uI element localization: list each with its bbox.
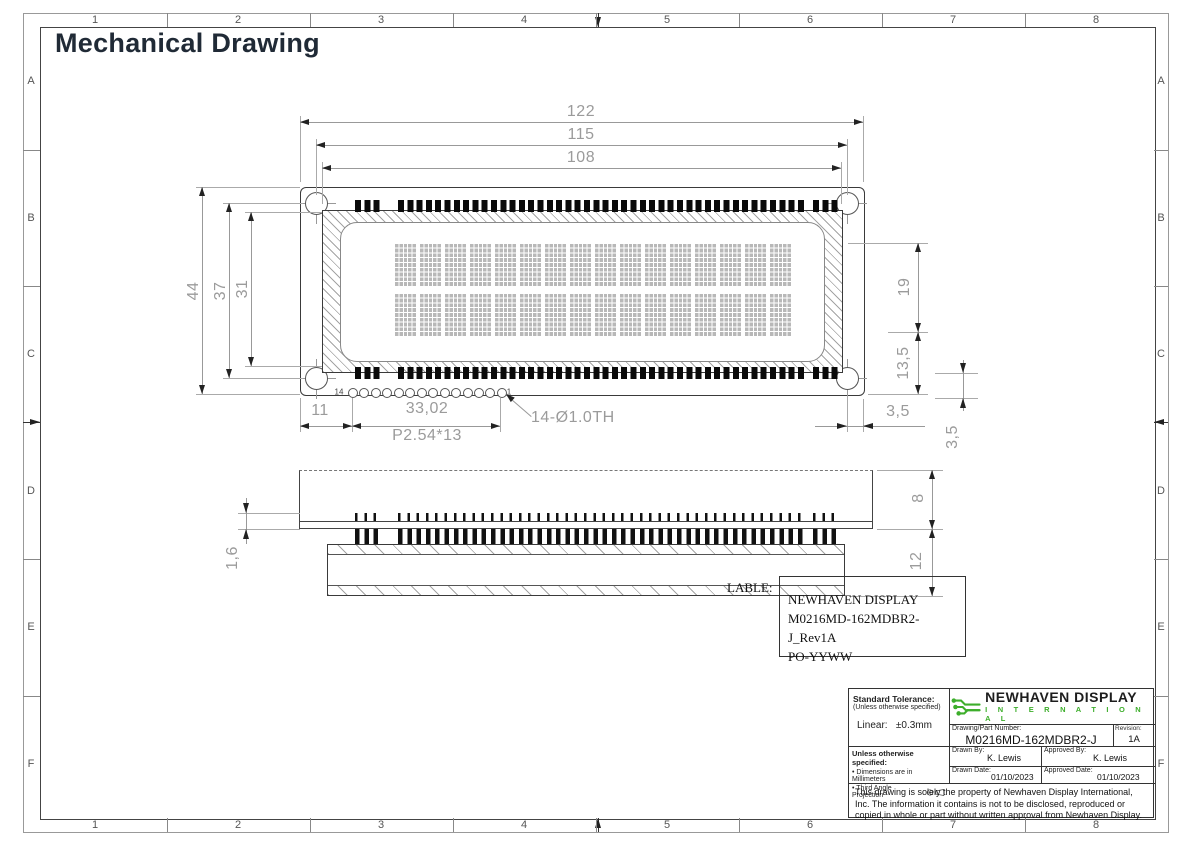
- character-cell: [720, 293, 742, 337]
- extension-line: [196, 187, 300, 188]
- label-caption: LABLE:: [727, 580, 773, 596]
- dim-label-44: 44: [185, 282, 203, 301]
- grid-tick: [596, 13, 597, 27]
- approved-by-value: K. Lewis: [1093, 753, 1127, 763]
- arrowhead: [243, 529, 249, 539]
- character-cell: [645, 293, 667, 337]
- extension-line: [223, 378, 303, 379]
- extension-line: [863, 116, 864, 182]
- grid-col-label: 3: [378, 14, 384, 26]
- character-cell: [520, 293, 542, 337]
- grid-col-label: 5: [664, 819, 670, 831]
- grid-tick: [23, 559, 40, 560]
- drawn-date-cell: Drawn Date: 01/10/2023: [949, 766, 1041, 783]
- grid-row-label: E: [1157, 621, 1164, 633]
- grid-tick: [1154, 150, 1168, 151]
- character-cell: [695, 243, 717, 287]
- grid-row-label: A: [27, 75, 34, 87]
- title-block: Standard Tolerance: (Unless otherwise sp…: [848, 688, 1154, 818]
- grid-tick: [1154, 696, 1168, 697]
- grid-col-label: 1: [92, 819, 98, 831]
- extension-line: [223, 203, 303, 204]
- grid-row-label: D: [27, 485, 35, 497]
- extension-line: [196, 394, 300, 395]
- pin-stub-group: [355, 513, 380, 521]
- character-cell: [495, 293, 517, 337]
- dim-label-11: 11: [311, 402, 329, 420]
- revision-label: Revision:: [1115, 725, 1142, 732]
- character-cell: [670, 243, 692, 287]
- spec-cell: Unless otherwise specified: • Dimensions…: [849, 746, 949, 783]
- grid-tick: [882, 818, 883, 832]
- pin-stub-group: [813, 513, 838, 521]
- grid-tick: [1025, 13, 1026, 27]
- dim-line-11: [300, 426, 352, 427]
- extension-line: [935, 398, 978, 399]
- grid-col-label: 6: [807, 14, 813, 26]
- arrowhead: [837, 423, 847, 429]
- dim-line-115: [316, 145, 847, 146]
- label-line-2: M0216MD-162MDBR2-J_Rev1A: [788, 609, 965, 647]
- extension-line: [888, 332, 928, 333]
- drawn-by-label: Drawn By:: [952, 747, 984, 754]
- dim-line-19: [918, 243, 919, 332]
- character-cell: [445, 243, 467, 287]
- extension-line: [238, 513, 300, 514]
- dim-line-122: [300, 122, 863, 123]
- tolerance-cell: Standard Tolerance: (Unless otherwise sp…: [849, 689, 949, 746]
- grid-tick: [596, 818, 597, 832]
- character-matrix: [395, 243, 792, 337]
- character-cell: [520, 243, 542, 287]
- dim-label-3-5v: 3,5: [944, 425, 962, 449]
- grid-tick: [1154, 559, 1168, 560]
- grid-row-label: E: [27, 621, 34, 633]
- character-cell: [695, 293, 717, 337]
- grid-col-label: 2: [235, 14, 241, 26]
- pin-hole: [440, 388, 450, 398]
- part-number-label: Drawing/Part Number:: [952, 725, 1021, 732]
- pin-hole-row: [348, 388, 508, 396]
- center-mark-left-arrow: [30, 419, 40, 425]
- part-number: M0216MD-162MDBR2-J: [949, 733, 1113, 747]
- dim-label-33-02: 33,02: [406, 400, 449, 418]
- character-cell: [495, 243, 517, 287]
- grid-tick: [453, 13, 454, 27]
- grid-tick: [167, 818, 168, 832]
- character-cell: [720, 243, 742, 287]
- character-cell: [570, 293, 592, 337]
- grid-row-label: D: [1157, 485, 1165, 497]
- approved-date-value: 01/10/2023: [1097, 772, 1140, 782]
- grid-col-label: 4: [521, 819, 527, 831]
- grid-tick: [882, 13, 883, 27]
- pin-hole: [417, 388, 427, 398]
- dim-label-37: 37: [212, 282, 230, 301]
- hatch-strip: [328, 545, 844, 555]
- dim-line-108: [322, 168, 841, 169]
- arrowhead: [960, 398, 966, 408]
- pad-group: [398, 367, 804, 379]
- center-mark-right-arrow: [1154, 419, 1164, 425]
- grid-col-label: 8: [1093, 14, 1099, 26]
- character-cell: [595, 243, 617, 287]
- character-cell: [445, 293, 467, 337]
- grid-col-label: 6: [807, 819, 813, 831]
- character-cell: [620, 243, 642, 287]
- drawing-sheet: Mechanical Drawing 14 1 122 115 108 4: [0, 0, 1200, 848]
- pad-group: [355, 367, 380, 379]
- pin-hole: [451, 388, 461, 398]
- pad-group: [398, 200, 804, 212]
- label-box: NEWHAVEN DISPLAY M0216MD-162MDBR2-J_Rev1…: [779, 576, 966, 657]
- grid-row-label: A: [1157, 75, 1164, 87]
- character-cell: [395, 293, 417, 337]
- dim-label-pin-holes: 14-Ø1.0TH: [531, 409, 615, 427]
- page-title: Mechanical Drawing: [55, 28, 320, 59]
- grid-row-label: B: [1157, 212, 1164, 224]
- revision-cell: Revision: 1A: [1113, 724, 1155, 746]
- grid-tick: [23, 696, 40, 697]
- pin-hole: [348, 388, 358, 398]
- extension-line: [847, 139, 848, 195]
- grid-tick: [1154, 286, 1168, 287]
- approved-date-label: Approved Date:: [1044, 767, 1093, 774]
- grid-col-label: 7: [950, 14, 956, 26]
- logo-cell: NEWHAVEN DISPLAY I N T E R N A T I O N A…: [949, 689, 1155, 724]
- grid-tick: [167, 13, 168, 27]
- logo-name: NEWHAVEN DISPLAY: [985, 690, 1155, 704]
- grid-col-label: 4: [521, 14, 527, 26]
- revision-value: 1A: [1113, 734, 1155, 745]
- pad-group: [813, 200, 838, 212]
- grid-tick: [739, 13, 740, 27]
- dim-label-8: 8: [910, 493, 928, 502]
- dim-label-3-5h: 3,5: [886, 403, 910, 421]
- grid-tick: [1025, 818, 1026, 832]
- pin-hole: [394, 388, 404, 398]
- character-cell: [745, 293, 767, 337]
- pin-hole: [463, 388, 473, 398]
- grid-col-label: 5: [664, 14, 670, 26]
- disclaimer-text: This drawing is solely the property of N…: [855, 787, 1142, 820]
- character-cell: [570, 243, 592, 287]
- character-cell: [670, 293, 692, 337]
- dim-label-pitch: P2.54*13: [392, 427, 462, 445]
- pin-group: [813, 529, 838, 544]
- dim-label-115: 115: [567, 126, 594, 144]
- extension-line: [841, 162, 842, 204]
- grid-col-label: 3: [378, 819, 384, 831]
- grid-col-label: 7: [950, 819, 956, 831]
- grid-tick: [739, 818, 740, 832]
- arrowhead: [960, 363, 966, 373]
- character-cell: [420, 293, 442, 337]
- character-cell: [645, 243, 667, 287]
- pin-label-14: 14: [335, 388, 344, 397]
- drawn-date-value: 01/10/2023: [991, 772, 1034, 782]
- character-cell: [770, 293, 792, 337]
- part-number-cell: Drawing/Part Number: M0216MD-162MDBR2-J: [949, 724, 1113, 746]
- drawn-date-label: Drawn Date:: [952, 767, 991, 774]
- tolerance-title: Standard Tolerance:: [853, 694, 945, 704]
- dim-label-1-6: 1,6: [224, 546, 242, 570]
- pin-hole: [474, 388, 484, 398]
- spec-title: Unless otherwise specified:: [852, 749, 946, 767]
- dim-label-31: 31: [234, 280, 252, 299]
- grid-row-label: C: [27, 348, 35, 360]
- character-cell: [595, 293, 617, 337]
- grid-col-label: 1: [92, 14, 98, 26]
- character-cell: [395, 243, 417, 287]
- extension-line: [935, 373, 978, 374]
- pin-hole: [371, 388, 381, 398]
- extension-line: [500, 398, 501, 432]
- character-cell: [770, 243, 792, 287]
- extension-line: [300, 116, 301, 182]
- dim-label-12: 12: [908, 552, 926, 571]
- extension-line: [868, 394, 928, 395]
- pin-stub-group: [398, 513, 804, 521]
- newhaven-logo-icon: [949, 693, 981, 721]
- pad-group: [813, 367, 838, 379]
- side-view-pcb-line: [299, 521, 873, 522]
- extension-line: [245, 366, 322, 367]
- character-cell: [620, 293, 642, 337]
- grid-col-label: 2: [235, 819, 241, 831]
- approved-by-cell: Approved By: K. Lewis: [1041, 746, 1155, 766]
- arrowhead: [243, 503, 249, 513]
- dim-label-108: 108: [567, 149, 595, 167]
- character-cell: [545, 243, 567, 287]
- dim-label-122: 122: [567, 103, 595, 121]
- tolerance-note: (Unless otherwise specified): [853, 704, 945, 711]
- label-line-1: NEWHAVEN DISPLAY: [788, 590, 965, 609]
- dim-line-8: [932, 470, 933, 529]
- grid-col-label: 8: [1093, 819, 1099, 831]
- drawn-by-value: K. Lewis: [987, 753, 1021, 763]
- pad-group: [355, 200, 380, 212]
- grid-row-label: C: [1157, 348, 1165, 360]
- extension-line: [245, 212, 322, 213]
- dim-label-13-5: 13,5: [895, 346, 913, 379]
- grid-tick: [310, 13, 311, 27]
- spec-item-1: • Dimensions are in Millimeters: [852, 769, 946, 783]
- pin-group: [398, 529, 804, 544]
- character-cell: [470, 243, 492, 287]
- pin-group: [355, 529, 380, 544]
- tolerance-value: Linear: ±0.3mm: [857, 720, 945, 731]
- label-line-3: PO-YYWW: [788, 647, 965, 666]
- grid-tick: [453, 818, 454, 832]
- character-cell: [745, 243, 767, 287]
- grid-row-label: B: [27, 212, 34, 224]
- character-cell: [545, 293, 567, 337]
- logo-subtitle: I N T E R N A T I O N A L: [985, 705, 1155, 723]
- approved-by-label: Approved By:: [1044, 747, 1086, 754]
- grid-tick: [310, 818, 311, 832]
- approved-date-cell: Approved Date: 01/10/2023: [1041, 766, 1155, 783]
- dim-label-19: 19: [896, 278, 914, 297]
- drawn-by-cell: Drawn By: K. Lewis: [949, 746, 1041, 766]
- character-cell: [420, 243, 442, 287]
- grid-tick: [23, 286, 40, 287]
- arrowhead: [863, 423, 873, 429]
- disclaimer-cell: This drawing is solely the property of N…: [849, 783, 1155, 819]
- grid-row-label: F: [1158, 758, 1165, 770]
- dim-line-13-5: [918, 332, 919, 394]
- grid-tick: [23, 150, 40, 151]
- grid-row-label: F: [28, 758, 35, 770]
- character-cell: [470, 293, 492, 337]
